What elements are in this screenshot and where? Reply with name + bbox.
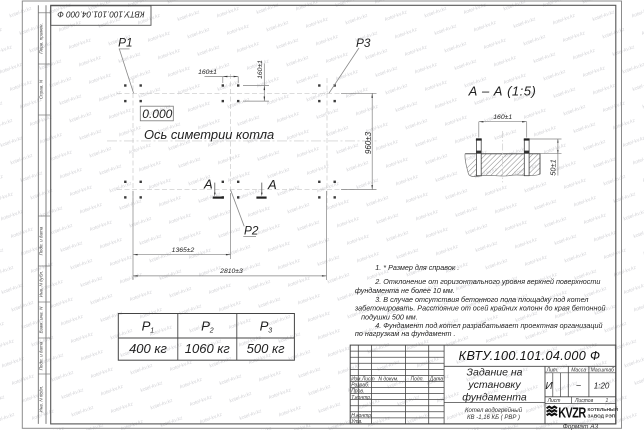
svg-text:kotel-kv.kz: kotel-kv.kz (70, 258, 94, 272)
svg-text:kotel-kv.kz: kotel-kv.kz (40, 279, 64, 293)
svg-text:kotel-kv.kz: kotel-kv.kz (473, 20, 497, 34)
svg-text:kotel-kv.kz: kotel-kv.kz (11, 373, 35, 387)
svg-text:kotel-kv.kz: kotel-kv.kz (463, 2, 487, 16)
svg-text:kotel-kv.kz: kotel-kv.kz (555, 380, 579, 394)
svg-text:kotel-kv.kz: kotel-kv.kz (109, 181, 133, 195)
svg-text:kotel-kv.kz: kotel-kv.kz (346, 233, 370, 247)
svg-text:kotel-kv.kz: kotel-kv.kz (247, 205, 271, 219)
svg-text:kotel-kv.kz: kotel-kv.kz (563, 177, 587, 191)
svg-text:kotel-kv.kz: kotel-kv.kz (276, 111, 300, 125)
svg-text:kotel-kv.kz: kotel-kv.kz (228, 317, 252, 331)
svg-text:kotel-kv.kz: kotel-kv.kz (317, 328, 341, 342)
svg-text:kotel-kv.kz: kotel-kv.kz (187, 27, 211, 41)
svg-text:kotel-kv.kz: kotel-kv.kz (356, 177, 380, 191)
svg-text:kotel-kv.kz: kotel-kv.kz (0, 191, 14, 205)
svg-text:kotel-kv.kz: kotel-kv.kz (150, 398, 174, 412)
svg-text:kotel-kv.kz: kotel-kv.kz (80, 275, 104, 289)
svg-text:kotel-kv.kz: kotel-kv.kz (0, 338, 15, 352)
svg-text:kotel-kv.kz: kotel-kv.kz (632, 79, 644, 93)
svg-text:kotel-kv.kz: kotel-kv.kz (394, 27, 418, 41)
svg-text:фундамента: фундамента (462, 392, 527, 404)
svg-text:kotel-kv.kz: kotel-kv.kz (157, 48, 181, 62)
svg-text:kotel-kv.kz: kotel-kv.kz (139, 233, 163, 247)
svg-text:kotel-kv.kz: kotel-kv.kz (1, 282, 25, 296)
svg-text:kotel-kv.kz: kotel-kv.kz (553, 86, 577, 100)
svg-text:kotel-kv.kz: kotel-kv.kz (287, 275, 311, 289)
svg-text:kotel-kv.kz: kotel-kv.kz (169, 359, 193, 373)
svg-text:kotel-kv.kz: kotel-kv.kz (216, 6, 240, 20)
svg-text:kotel-kv.kz: kotel-kv.kz (60, 240, 84, 254)
svg-text:kotel-kv.kz: kotel-kv.kz (632, 153, 644, 167)
svg-text:kotel-kv.kz: kotel-kv.kz (79, 202, 103, 216)
svg-text:kotel-kv.kz: kotel-kv.kz (248, 279, 272, 293)
svg-text:kotel-kv.kz: kotel-kv.kz (209, 356, 233, 370)
svg-text:kotel-kv.kz: kotel-kv.kz (367, 342, 391, 356)
svg-text:kotel-kv.kz: kotel-kv.kz (454, 58, 478, 72)
svg-text:kotel-kv.kz: kotel-kv.kz (592, 83, 616, 97)
svg-text:P2: P2 (244, 223, 259, 237)
svg-text:kotel-kv.kz: kotel-kv.kz (118, 125, 142, 139)
svg-text:kotel-kv.kz: kotel-kv.kz (396, 247, 420, 261)
svg-text:kotel-kv.kz: kotel-kv.kz (534, 198, 558, 212)
svg-text:kotel-kv.kz: kotel-kv.kz (41, 352, 65, 366)
svg-text:kotel-kv.kz: kotel-kv.kz (278, 405, 302, 419)
svg-text:kotel-kv.kz: kotel-kv.kz (523, 107, 547, 121)
svg-text:kotel-kv.kz: kotel-kv.kz (89, 146, 113, 160)
svg-text:Дата: Дата (429, 376, 443, 382)
svg-text:kotel-kv.kz: kotel-kv.kz (513, 16, 537, 30)
svg-text:–: – (575, 380, 581, 389)
svg-text:kotel-kv.kz: kotel-kv.kz (78, 55, 102, 69)
svg-text:kotel-kv.kz: kotel-kv.kz (0, 100, 4, 114)
svg-text:kotel-kv.kz: kotel-kv.kz (455, 205, 479, 219)
svg-text:1: 1 (606, 398, 609, 404)
svg-text:Н.контр.: Н.контр. (351, 413, 372, 419)
svg-text:kotel-kv.kz: kotel-kv.kz (128, 69, 152, 83)
svg-text:kotel-kv.kz: kotel-kv.kz (484, 184, 508, 198)
svg-text:КВТУ.100.101.04.000 Ф: КВТУ.100.101.04.000 Ф (459, 349, 601, 363)
svg-text:Перв. примен.: Перв. примен. (39, 23, 44, 54)
svg-text:kotel-kv.kz: kotel-kv.kz (572, 48, 596, 62)
svg-text:kotel-kv.kz: kotel-kv.kz (0, 209, 24, 223)
svg-text:kotel-kv.kz: kotel-kv.kz (485, 331, 509, 345)
svg-text:kotel-kv.kz: kotel-kv.kz (58, 20, 82, 34)
svg-text:забетонировать. Расстояние от: забетонировать. Расстояние от осей крайн… (354, 304, 606, 313)
svg-text:kotel-kv.kz: kotel-kv.kz (189, 394, 213, 408)
svg-text:kotel-kv.kz: kotel-kv.kz (326, 198, 350, 212)
svg-text:kotel-kv.kz: kotel-kv.kz (0, 394, 6, 408)
svg-text:960±3: 960±3 (364, 131, 373, 154)
svg-text:Инв. N подл.: Инв. N подл. (39, 386, 44, 413)
svg-text:KVZR: KVZR (558, 404, 586, 421)
svg-text:kotel-kv.kz: kotel-kv.kz (533, 125, 557, 139)
svg-text:kotel-kv.kz: kotel-kv.kz (405, 191, 429, 205)
svg-text:kotel-kv.kz: kotel-kv.kz (138, 160, 162, 174)
svg-text:kotel-kv.kz: kotel-kv.kz (336, 142, 360, 156)
svg-text:kotel-kv.kz: kotel-kv.kz (0, 118, 14, 132)
svg-text:Пров.: Пров. (351, 389, 364, 395)
svg-text:Утв.: Утв. (351, 419, 362, 425)
svg-text:kotel-kv.kz: kotel-kv.kz (158, 195, 182, 209)
svg-text:Инв. N дубл.: Инв. N дубл. (39, 271, 44, 298)
svg-text:1: 1 (150, 328, 154, 335)
svg-text:Изм.Лист: Изм.Лист (351, 376, 375, 382)
svg-text:kotel-kv.kz: kotel-kv.kz (140, 380, 164, 394)
svg-text:КВТУ.100.101.04.000 Ф: КВТУ.100.101.04.000 Ф (57, 10, 145, 19)
svg-text:kotel-kv.kz: kotel-kv.kz (444, 114, 468, 128)
svg-text:kotel-kv.kz: kotel-kv.kz (583, 212, 607, 226)
svg-text:kotel-kv.kz: kotel-kv.kz (316, 107, 340, 121)
svg-text:kotel-kv.kz: kotel-kv.kz (297, 293, 321, 307)
svg-text:kotel-kv.kz: kotel-kv.kz (407, 412, 431, 426)
svg-text:И: И (545, 381, 553, 392)
svg-text:1:20: 1:20 (594, 382, 610, 391)
svg-text:kotel-kv.kz: kotel-kv.kz (148, 177, 172, 191)
svg-text:kotel-kv.kz: kotel-kv.kz (305, 16, 329, 30)
svg-text:1. * Размер для справок .: 1. * Размер для справок . (375, 263, 459, 272)
svg-text:kotel-kv.kz: kotel-kv.kz (50, 223, 74, 237)
svg-text:kotel-kv.kz: kotel-kv.kz (415, 135, 439, 149)
svg-text:3. В случае отсутствия бетонно: 3. В случае отсутствия бетонного пола пл… (375, 295, 588, 304)
svg-text:kotel-kv.kz: kotel-kv.kz (355, 104, 379, 118)
svg-text:kotel-kv.kz: kotel-kv.kz (219, 373, 243, 387)
svg-text:А – А (1:5): А – А (1:5) (468, 84, 537, 99)
svg-text:Ось симетрии котла: Ось симетрии котла (144, 127, 274, 142)
svg-text:kotel-kv.kz: kotel-kv.kz (593, 156, 617, 170)
svg-text:kotel-kv.kz: kotel-kv.kz (494, 202, 518, 216)
svg-text:kotel-kv.kz: kotel-kv.kz (109, 254, 133, 268)
svg-text:kotel-kv.kz: kotel-kv.kz (623, 282, 644, 296)
svg-text:Справ. N: Справ. N (39, 79, 44, 99)
svg-text:Лит.: Лит. (546, 368, 559, 374)
svg-text:kotel-kv.kz: kotel-kv.kz (256, 2, 280, 16)
svg-text:kotel-kv.kz: kotel-kv.kz (108, 107, 132, 121)
svg-text:kotel-kv.kz: kotel-kv.kz (496, 422, 520, 430)
svg-text:kotel-kv.kz: kotel-kv.kz (69, 184, 93, 198)
svg-text:kotel-kv.kz: kotel-kv.kz (159, 268, 183, 282)
svg-text:kotel-kv.kz: kotel-kv.kz (130, 363, 154, 377)
svg-text:kotel-kv.kz: kotel-kv.kz (504, 219, 528, 233)
svg-text:kotel-kv.kz: kotel-kv.kz (39, 132, 63, 146)
svg-text:kotel-kv.kz: kotel-kv.kz (295, 0, 319, 12)
svg-text:kotel-kv.kz: kotel-kv.kz (49, 76, 73, 90)
svg-text:kotel-kv.kz: kotel-kv.kz (483, 37, 507, 51)
svg-text:kotel-kv.kz: kotel-kv.kz (59, 93, 83, 107)
svg-text:КВ -1,16 КБ ( РВР ): КВ -1,16 КБ ( РВР ) (467, 415, 520, 421)
svg-text:kotel-kv.kz: kotel-kv.kz (80, 349, 104, 363)
svg-text:kotel-kv.kz: kotel-kv.kz (79, 128, 103, 142)
svg-text:Масштаб: Масштаб (591, 368, 615, 374)
svg-text:kotel-kv.kz: kotel-kv.kz (552, 13, 576, 27)
svg-text:kotel-kv.kz: kotel-kv.kz (346, 160, 370, 174)
svg-text:kotel-kv.kz: kotel-kv.kz (267, 240, 291, 254)
svg-text:kotel-kv.kz: kotel-kv.kz (633, 226, 644, 240)
svg-text:50±1: 50±1 (548, 159, 557, 175)
svg-text:kotel-kv.kz: kotel-kv.kz (88, 72, 112, 86)
svg-text:kotel-kv.kz: kotel-kv.kz (257, 149, 281, 163)
svg-text:1365±2: 1365±2 (172, 247, 195, 254)
svg-text:kotel-kv.kz: kotel-kv.kz (434, 97, 458, 111)
svg-text:kotel-kv.kz: kotel-kv.kz (533, 51, 557, 65)
svg-text:kotel-kv.kz: kotel-kv.kz (404, 44, 428, 58)
svg-text:kotel-kv.kz: kotel-kv.kz (268, 314, 292, 328)
svg-text:kotel-kv.kz: kotel-kv.kz (297, 219, 321, 233)
svg-text:kotel-kv.kz: kotel-kv.kz (60, 314, 84, 328)
svg-text:kotel-kv.kz: kotel-kv.kz (415, 209, 439, 223)
svg-text:kotel-kv.kz: kotel-kv.kz (168, 212, 192, 226)
svg-text:kotel-kv.kz: kotel-kv.kz (258, 370, 282, 384)
svg-text:kotel-kv.kz: kotel-kv.kz (366, 195, 390, 209)
svg-text:Взам. инв. N: Взам. инв. N (39, 306, 44, 333)
svg-text:kotel-kv.kz: kotel-kv.kz (129, 289, 153, 303)
svg-text:kotel-kv.kz: kotel-kv.kz (524, 254, 548, 268)
svg-text:kotel-kv.kz: kotel-kv.kz (296, 72, 320, 86)
svg-text:kotel-kv.kz: kotel-kv.kz (494, 128, 518, 142)
svg-text:kotel-kv.kz: kotel-kv.kz (0, 247, 5, 261)
svg-text:по нагрузкам на фундамент .: по нагрузкам на фундамент . (355, 329, 456, 338)
svg-text:kotel-kv.kz: kotel-kv.kz (236, 41, 260, 55)
svg-text:2: 2 (209, 328, 214, 335)
svg-text:kotel-kv.kz: kotel-kv.kz (179, 303, 203, 317)
svg-text:kotel-kv.kz: kotel-kv.kz (98, 90, 122, 104)
svg-text:kotel-kv.kz: kotel-kv.kz (385, 156, 409, 170)
svg-text:kotel-kv.kz: kotel-kv.kz (327, 345, 351, 359)
svg-text:kotel-kv.kz: kotel-kv.kz (318, 401, 342, 415)
svg-text:kotel-kv.kz: kotel-kv.kz (266, 20, 290, 34)
svg-text:Подп.: Подп. (411, 376, 424, 382)
svg-text:kotel-kv.kz: kotel-kv.kz (445, 188, 469, 202)
svg-text:kotel-kv.kz: kotel-kv.kz (90, 293, 114, 307)
svg-text:kotel-kv.kz: kotel-kv.kz (0, 412, 16, 426)
svg-text:2. Отклонение от горизонтально: 2. Отклонение от горизонтального уровня … (374, 277, 600, 286)
svg-text:kotel-kv.kz: kotel-kv.kz (40, 205, 64, 219)
svg-text:kotel-kv.kz: kotel-kv.kz (237, 114, 261, 128)
svg-text:kotel-kv.kz: kotel-kv.kz (335, 69, 359, 83)
svg-text:kotel-kv.kz: kotel-kv.kz (239, 408, 263, 422)
svg-text:kotel-kv.kz: kotel-kv.kz (179, 377, 203, 391)
svg-text:kotel-kv.kz: kotel-kv.kz (326, 125, 350, 139)
svg-text:Т.контр.: Т.контр. (351, 395, 371, 401)
svg-text:kotel-kv.kz: kotel-kv.kz (377, 359, 401, 373)
svg-text:kotel-kv.kz: kotel-kv.kz (434, 23, 458, 37)
svg-text:kotel-kv.kz: kotel-kv.kz (414, 62, 438, 76)
svg-text:kotel-kv.kz: kotel-kv.kz (69, 111, 93, 125)
svg-text:kotel-kv.kz: kotel-kv.kz (633, 300, 644, 314)
svg-text:kotel-kv.kz: kotel-kv.kz (435, 170, 459, 184)
svg-text:kotel-kv.kz: kotel-kv.kz (554, 233, 578, 247)
svg-text:kotel-kv.kz: kotel-kv.kz (444, 41, 468, 55)
svg-text:kotel-kv.kz: kotel-kv.kz (50, 296, 74, 310)
svg-text:kotel-kv.kz: kotel-kv.kz (89, 219, 113, 233)
svg-text:kotel-kv.kz: kotel-kv.kz (613, 265, 637, 279)
svg-text:kotel-kv.kz: kotel-kv.kz (268, 387, 292, 401)
svg-text:kotel-kv.kz: kotel-kv.kz (208, 282, 232, 296)
svg-text:kotel-kv.kz: kotel-kv.kz (149, 251, 173, 265)
svg-text:kotel-kv.kz: kotel-kv.kz (385, 83, 409, 97)
svg-text:kotel-kv.kz: kotel-kv.kz (277, 184, 301, 198)
svg-text:kotel-kv.kz: kotel-kv.kz (315, 34, 339, 48)
svg-text:kotel-kv.kz: kotel-kv.kz (288, 422, 312, 430)
svg-text:А: А (267, 177, 277, 192)
svg-text:kotel-kv.kz: kotel-kv.kz (0, 265, 15, 279)
svg-text:kotel-kv.kz: kotel-kv.kz (475, 240, 499, 254)
svg-text:kotel-kv.kz: kotel-kv.kz (524, 181, 548, 195)
svg-text:kotel-kv.kz: kotel-kv.kz (593, 230, 617, 244)
svg-text:kotel-kv.kz: kotel-kv.kz (257, 223, 281, 237)
svg-text:0.000: 0.000 (142, 107, 172, 121)
svg-text:kotel-kv.kz: kotel-kv.kz (59, 167, 83, 181)
svg-text:kotel-kv.kz: kotel-kv.kz (523, 34, 547, 48)
svg-text:kotel-kv.kz: kotel-kv.kz (90, 366, 114, 380)
svg-text:kotel-kv.kz: kotel-kv.kz (624, 356, 644, 370)
svg-text:kotel-kv.kz: kotel-kv.kz (119, 272, 143, 286)
svg-text:kotel-kv.kz: kotel-kv.kz (187, 100, 211, 114)
svg-text:kotel-kv.kz: kotel-kv.kz (0, 321, 5, 335)
svg-text:kotel-kv.kz: kotel-kv.kz (425, 153, 449, 167)
svg-text:kotel-kv.kz: kotel-kv.kz (51, 370, 75, 384)
svg-text:kotel-kv.kz: kotel-kv.kz (218, 226, 242, 240)
svg-text:kotel-kv.kz: kotel-kv.kz (386, 230, 410, 244)
svg-text:kotel-kv.kz: kotel-kv.kz (286, 128, 310, 142)
svg-text:kotel-kv.kz: kotel-kv.kz (99, 163, 123, 177)
svg-text:kotel-kv.kz: kotel-kv.kz (99, 237, 123, 251)
svg-text:kotel-kv.kz: kotel-kv.kz (0, 174, 4, 188)
svg-text:kotel-kv.kz: kotel-kv.kz (573, 121, 597, 135)
svg-text:kotel-kv.kz: kotel-kv.kz (167, 65, 191, 79)
svg-text:Котел водогрейный: Котел водогрейный (465, 407, 523, 414)
svg-text:фундамента не более 10 мм.: фундамента не более 10 мм. (355, 286, 455, 295)
svg-text:kotel-kv.kz: kotel-kv.kz (228, 244, 252, 258)
svg-text:kotel-kv.kz: kotel-kv.kz (592, 9, 616, 23)
svg-text:kotel-kv.kz: kotel-kv.kz (0, 135, 24, 149)
svg-text:ЗАВОД РЭП: ЗАВОД РЭП (588, 413, 616, 418)
svg-text:160±1: 160±1 (198, 69, 217, 76)
svg-text:kotel-kv.kz: kotel-kv.kz (110, 328, 134, 342)
svg-text:kotel-kv.kz: kotel-kv.kz (514, 237, 538, 251)
svg-text:kotel-kv.kz: kotel-kv.kz (208, 209, 232, 223)
svg-text:kotel-kv.kz: kotel-kv.kz (405, 118, 429, 132)
svg-text:kotel-kv.kz: kotel-kv.kz (199, 412, 223, 426)
svg-text:kotel-kv.kz: kotel-kv.kz (178, 156, 202, 170)
svg-text:kotel-kv.kz: kotel-kv.kz (375, 139, 399, 153)
svg-text:kotel-kv.kz: kotel-kv.kz (119, 198, 143, 212)
svg-text:kotel-kv.kz: kotel-kv.kz (621, 0, 644, 2)
svg-text:kotel-kv.kz: kotel-kv.kz (298, 366, 322, 380)
svg-text:kotel-kv.kz: kotel-kv.kz (147, 30, 171, 44)
svg-text:КОТЕЛЬНЫЙ: КОТЕЛЬНЫЙ (588, 405, 619, 412)
svg-text:Подп. и дата: Подп. и дата (39, 341, 44, 370)
svg-text:установку: установку (467, 379, 521, 391)
svg-text:P1: P1 (118, 35, 132, 49)
svg-text:kotel-kv.kz: kotel-kv.kz (68, 37, 92, 51)
svg-text:kotel-kv.kz: kotel-kv.kz (376, 212, 400, 226)
svg-text:kotel-kv.kz: kotel-kv.kz (435, 244, 459, 258)
svg-text:kotel-kv.kz: kotel-kv.kz (226, 23, 250, 37)
svg-text:500 кг: 500 кг (247, 341, 285, 356)
svg-text:kotel-kv.kz: kotel-kv.kz (317, 254, 341, 268)
svg-text:kotel-kv.kz: kotel-kv.kz (286, 55, 310, 69)
svg-text:kotel-kv.kz: kotel-kv.kz (160, 415, 184, 429)
svg-text:kotel-kv.kz: kotel-kv.kz (465, 223, 489, 237)
svg-text:kotel-kv.kz: kotel-kv.kz (631, 6, 644, 20)
svg-text:kotel-kv.kz: kotel-kv.kz (0, 27, 3, 41)
svg-text:kotel-kv.kz: kotel-kv.kz (602, 27, 626, 41)
svg-text:kotel-kv.kz: kotel-kv.kz (9, 79, 33, 93)
svg-text:kotel-kv.kz: kotel-kv.kz (622, 135, 644, 149)
svg-text:N докум.: N докум. (378, 376, 398, 382)
svg-text:kotel-kv.kz: kotel-kv.kz (177, 83, 201, 97)
svg-text:kotel-kv.kz: kotel-kv.kz (0, 44, 13, 58)
svg-text:kotel-kv.kz: kotel-kv.kz (564, 251, 588, 265)
svg-text:kotel-kv.kz: kotel-kv.kz (70, 331, 94, 345)
svg-text:kotel-kv.kz: kotel-kv.kz (623, 209, 644, 223)
svg-text:kotel-kv.kz: kotel-kv.kz (634, 373, 644, 387)
svg-text:kotel-kv.kz: kotel-kv.kz (336, 216, 360, 230)
svg-text:kotel-kv.kz: kotel-kv.kz (485, 258, 509, 272)
svg-text:kotel-kv.kz: kotel-kv.kz (258, 296, 282, 310)
svg-text:kotel-kv.kz: kotel-kv.kz (602, 100, 626, 114)
svg-text:kotel-kv.kz: kotel-kv.kz (395, 174, 419, 188)
svg-text:Задание на: Задание на (467, 367, 523, 379)
svg-text:kotel-kv.kz: kotel-kv.kz (49, 149, 73, 163)
svg-text:Подп. и дата: Подп. и дата (39, 226, 44, 255)
svg-text:kotel-kv.kz: kotel-kv.kz (424, 6, 448, 20)
svg-text:kotel-kv.kz: kotel-kv.kz (454, 132, 478, 146)
svg-text:kotel-kv.kz: kotel-kv.kz (0, 0, 23, 2)
svg-text:kotel-kv.kz: kotel-kv.kz (9, 6, 33, 20)
svg-text:kotel-kv.kz: kotel-kv.kz (197, 44, 221, 58)
svg-text:kotel-kv.kz: kotel-kv.kz (100, 310, 124, 324)
svg-text:kotel-kv.kz: kotel-kv.kz (308, 384, 332, 398)
svg-text:kotel-kv.kz: kotel-kv.kz (543, 69, 567, 83)
svg-text:kotel-kv.kz: kotel-kv.kz (0, 62, 23, 76)
svg-text:kotel-kv.kz: kotel-kv.kz (20, 170, 44, 184)
svg-text:А: А (203, 177, 213, 192)
svg-text:3: 3 (268, 328, 272, 335)
svg-text:kotel-kv.kz: kotel-kv.kz (306, 90, 330, 104)
svg-text:kotel-kv.kz: kotel-kv.kz (562, 30, 586, 44)
svg-text:kotel-kv.kz: kotel-kv.kz (614, 412, 638, 426)
svg-text:kotel-kv.kz: kotel-kv.kz (583, 139, 607, 153)
svg-text:kotel-kv.kz: kotel-kv.kz (198, 265, 222, 279)
svg-text:kotel-kv.kz: kotel-kv.kz (218, 300, 242, 314)
svg-text:kotel-kv.kz: kotel-kv.kz (345, 13, 369, 27)
svg-text:kotel-kv.kz: kotel-kv.kz (81, 422, 105, 430)
svg-text:kotel-kv.kz: kotel-kv.kz (266, 93, 290, 107)
svg-text:kotel-kv.kz: kotel-kv.kz (563, 104, 587, 118)
svg-text:kotel-kv.kz: kotel-kv.kz (622, 62, 644, 76)
svg-text:kotel-kv.kz: kotel-kv.kz (296, 146, 320, 160)
svg-text:160±1: 160±1 (493, 114, 512, 121)
svg-text:Масса: Масса (571, 368, 586, 374)
svg-text:kotel-kv.kz: kotel-kv.kz (229, 391, 253, 405)
svg-text:kotel-kv.kz: kotel-kv.kz (493, 55, 517, 69)
svg-text:kotel-kv.kz: kotel-kv.kz (277, 258, 301, 272)
svg-text:kotel-kv.kz: kotel-kv.kz (395, 100, 419, 114)
svg-text:kotel-kv.kz: kotel-kv.kz (544, 216, 568, 230)
svg-text:kotel-kv.kz: kotel-kv.kz (217, 153, 241, 167)
svg-text:kotel-kv.kz: kotel-kv.kz (100, 384, 124, 398)
svg-text:kotel-kv.kz: kotel-kv.kz (129, 216, 153, 230)
svg-text:kotel-kv.kz: kotel-kv.kz (424, 79, 448, 93)
svg-text:kotel-kv.kz: kotel-kv.kz (178, 230, 202, 244)
svg-text:kotel-kv.kz: kotel-kv.kz (307, 237, 331, 251)
svg-text:kotel-kv.kz: kotel-kv.kz (375, 65, 399, 79)
svg-text:kotel-kv.kz: kotel-kv.kz (128, 142, 152, 156)
svg-text:kotel-kv.kz: kotel-kv.kz (169, 286, 193, 300)
svg-text:kotel-kv.kz: kotel-kv.kz (276, 37, 300, 51)
svg-text:160±1: 160±1 (257, 60, 264, 79)
